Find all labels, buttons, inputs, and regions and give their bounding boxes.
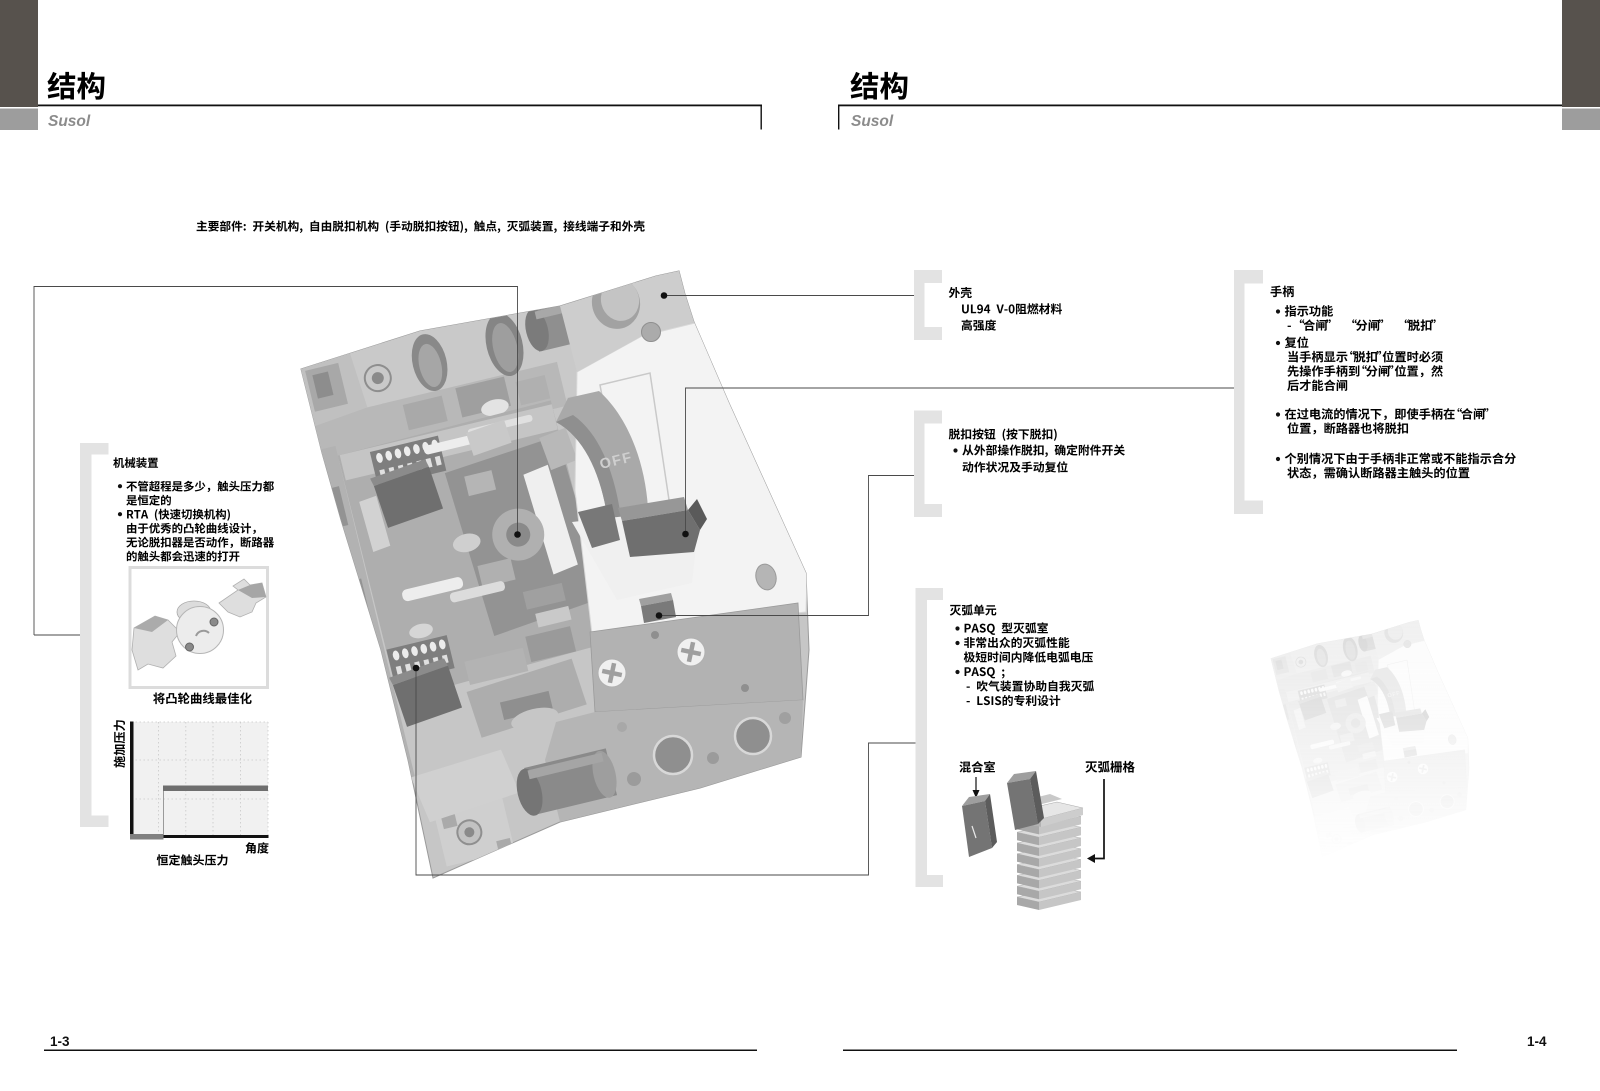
svg-text:Susol: Susol: [48, 113, 91, 130]
svg-text:1-4: 1-4: [1527, 1034, 1547, 1049]
svg-text:1-3: 1-3: [50, 1034, 70, 1049]
svg-text:Susol: Susol: [851, 113, 894, 130]
